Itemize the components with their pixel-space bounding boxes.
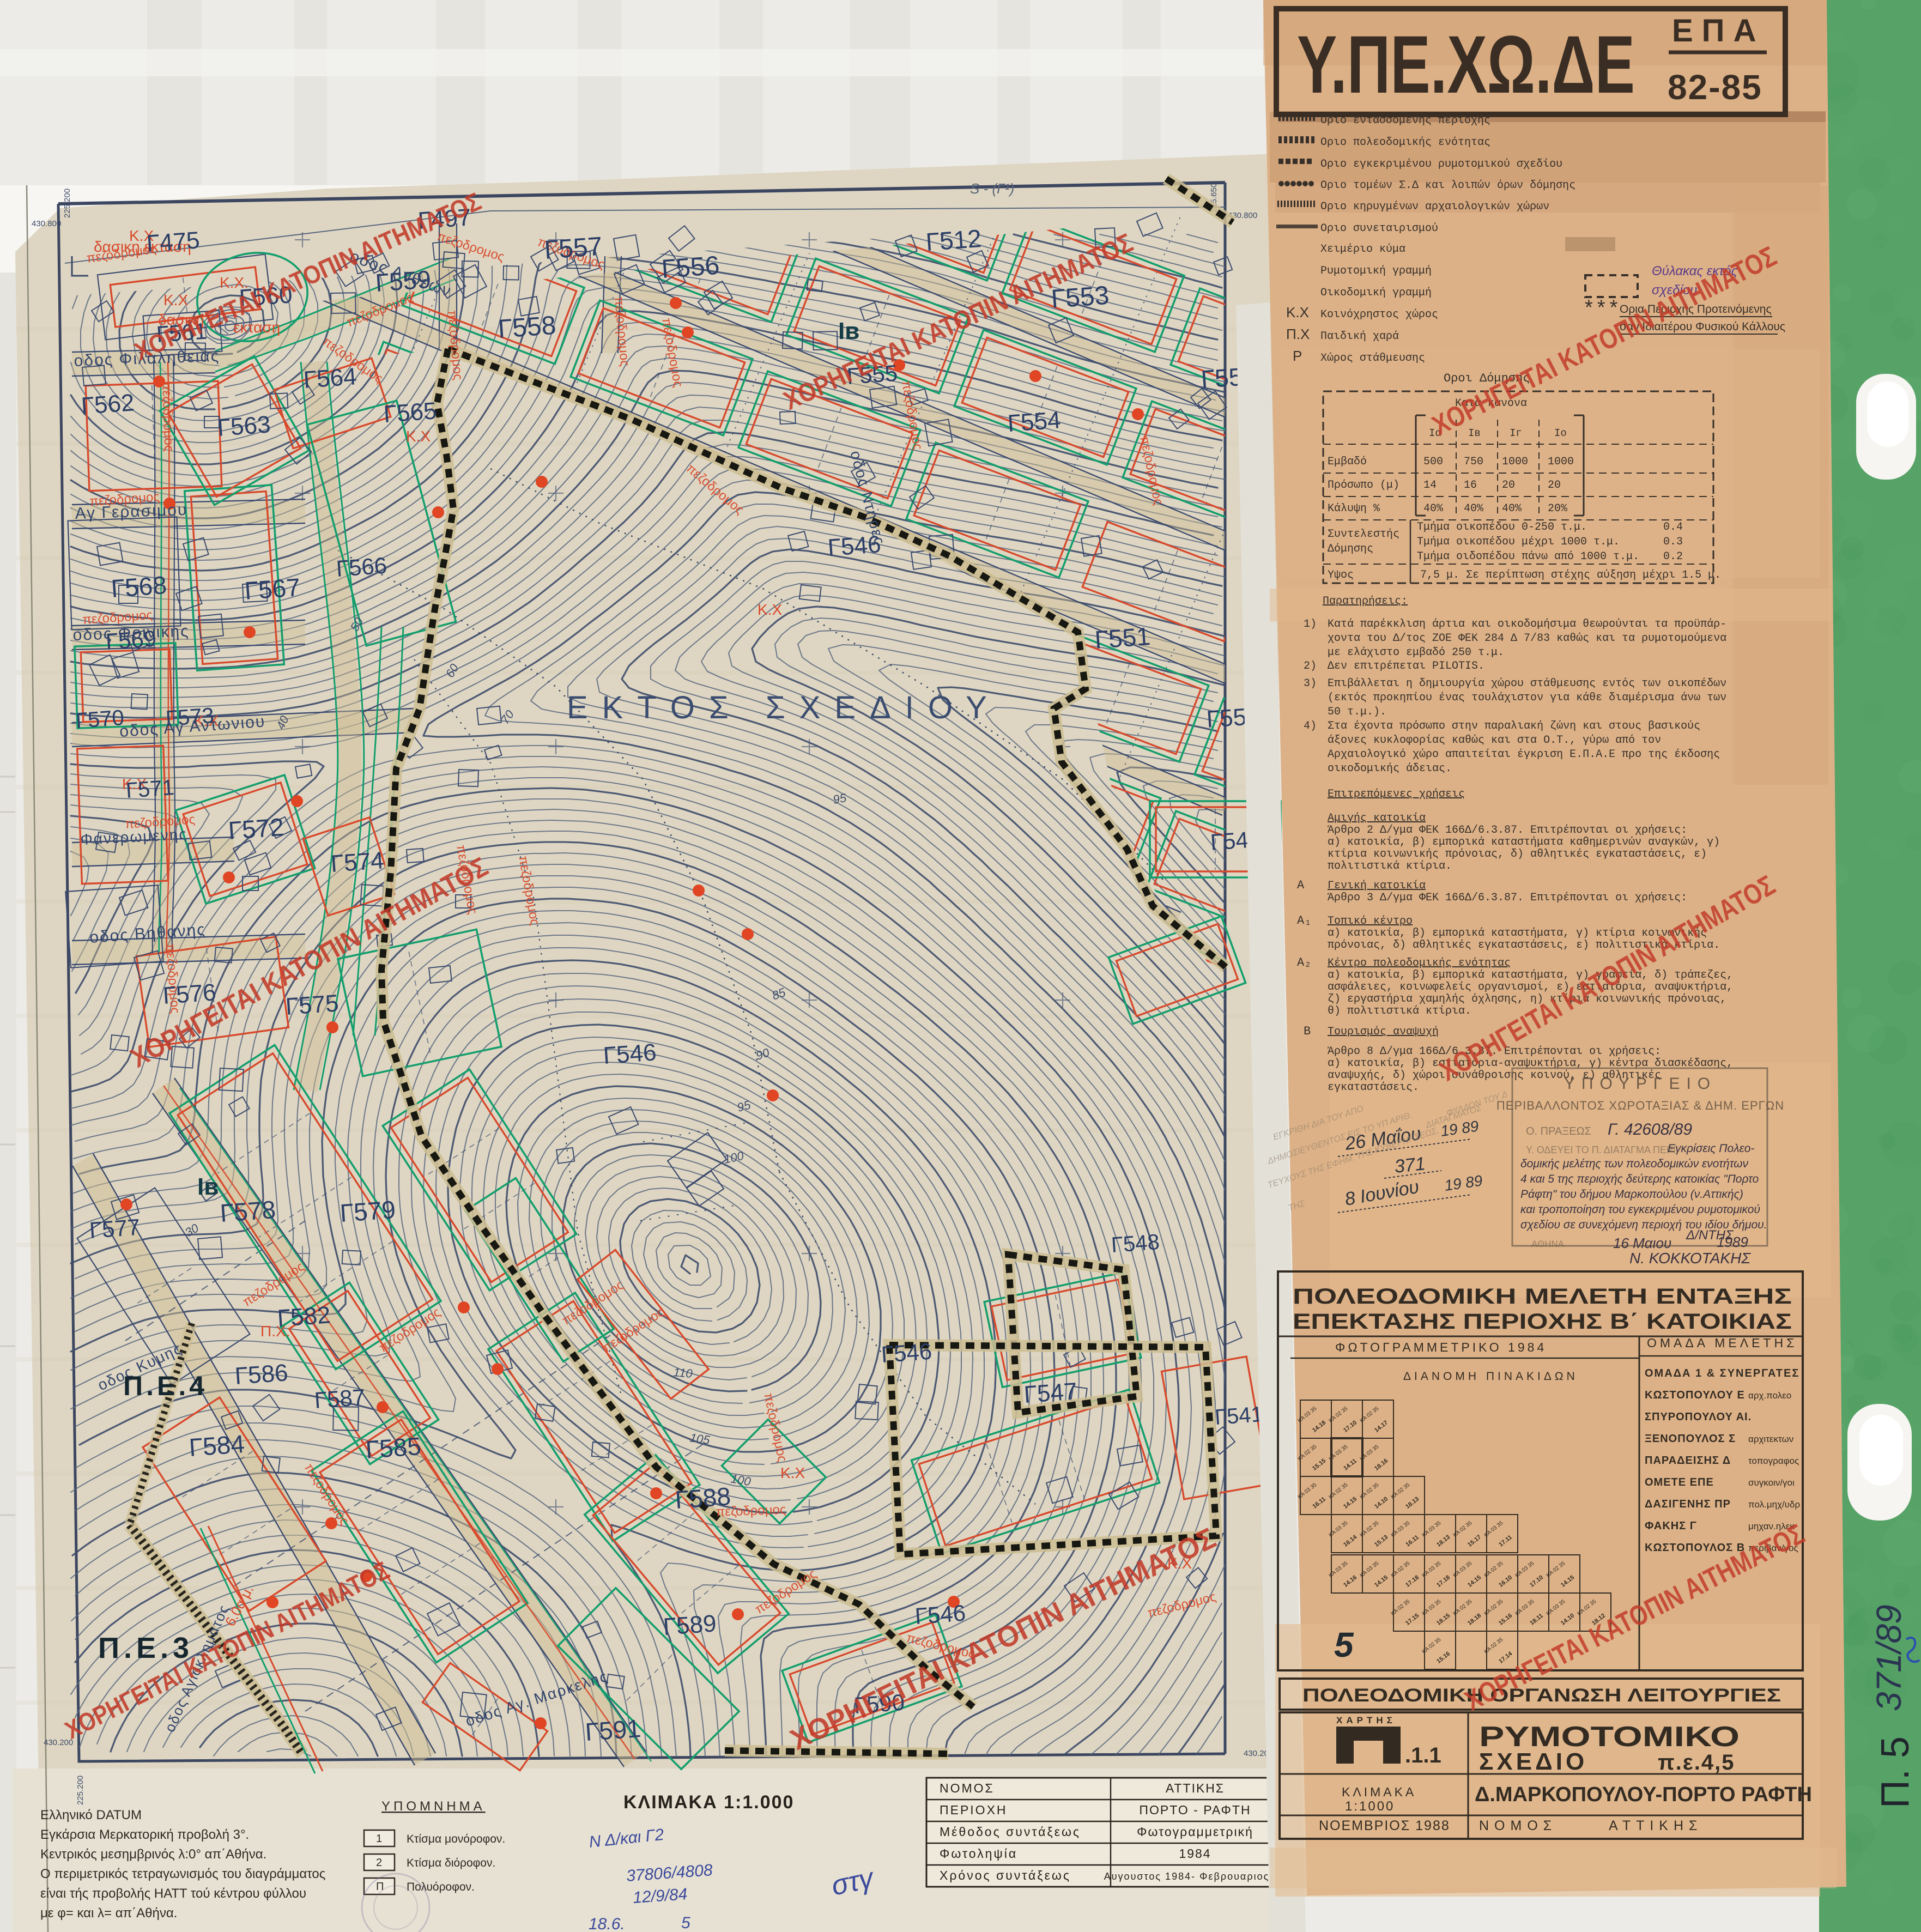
svg-text:Γ551: Γ551 <box>1094 622 1151 654</box>
svg-text:225.200: 225.200 <box>63 189 72 218</box>
svg-text:Γ556: Γ556 <box>660 251 720 284</box>
svg-text:ΟΜΑΔΑ ΜΕΛΕΤΗΣ: ΟΜΑΔΑ ΜΕΛΕΤΗΣ <box>1647 1336 1797 1350</box>
svg-text:Π.Χ: Π.Χ <box>1286 326 1310 342</box>
svg-text:Εμβαδό: Εμβαδό <box>1328 456 1367 468</box>
svg-text:5: 5 <box>1334 1625 1354 1664</box>
svg-text:Ράφτη" του δήμου Μαρκοπούλου (: Ράφτη" του δήμου Μαρκοπούλου (ν.Αττικής) <box>1520 1188 1743 1201</box>
svg-text:20: 20 <box>1502 479 1515 492</box>
svg-text:χοντα του Δ/τος ΖΟΕ ΦΕΚ 284 Δ: χοντα του Δ/τος ΖΟΕ ΦΕΚ 284 Δ 7/83 καθώς… <box>1328 632 1726 645</box>
svg-text:Γ564: Γ564 <box>302 363 357 393</box>
svg-text:πολιτιστικά κτίρια.: πολιτιστικά κτίρια. <box>1328 860 1452 873</box>
svg-text:20%: 20% <box>1548 502 1568 515</box>
svg-text:πολ.μηχ/υδρ: πολ.μηχ/υδρ <box>1748 1499 1800 1510</box>
svg-text:Πρόσωπο (μ): Πρόσωπο (μ) <box>1328 479 1399 492</box>
svg-text:Γ587: Γ587 <box>313 1384 366 1413</box>
svg-text:110: 110 <box>673 1365 694 1380</box>
svg-text:Κ.Χ: Κ.Χ <box>780 1464 805 1481</box>
svg-text:5: 5 <box>681 1914 690 1932</box>
svg-text:ΔΙΑΝΟΜΗ ΠΙΝΑΚΙΔΩΝ: ΔΙΑΝΟΜΗ ΠΙΝΑΚΙΔΩΝ <box>1403 1370 1578 1383</box>
svg-text:ΠΕΡΙΒΑΛΛΟΝΤΟΣ ΧΩΡΟΤΑΞΙΑΣ & ΔΗΜ: ΠΕΡΙΒΑΛΛΟΝΤΟΣ ΧΩΡΟΤΑΞΙΑΣ & ΔΗΜ. ΕΡΓΩΝ <box>1496 1099 1784 1112</box>
svg-text:Φωτοληψία: Φωτοληψία <box>940 1846 1017 1861</box>
svg-text:Α: Α <box>1297 879 1305 892</box>
svg-text:Κεντρικός μεσημβρινός λ:0° α: Κεντρικός μεσημβρινός λ:0° απ΄Αθήνα. <box>40 1847 266 1862</box>
svg-text:Γ585: Γ585 <box>365 1432 422 1464</box>
svg-text:Οριο πολεοδομικής ενότητας: Οριο πολεοδομικής ενότητας <box>1320 136 1490 149</box>
svg-text:40%: 40% <box>1464 502 1484 515</box>
svg-text:Γ. 42608/89: Γ. 42608/89 <box>1608 1121 1692 1138</box>
svg-text:Γ589: Γ589 <box>662 1610 717 1640</box>
svg-text:1984: 1984 <box>1179 1846 1211 1861</box>
svg-text:16: 16 <box>1464 479 1477 492</box>
svg-text:Γ541: Γ541 <box>1214 1402 1264 1430</box>
svg-text:Παρατηρήσεις:: Παρατηρήσεις: <box>1323 595 1408 608</box>
svg-text:πεζοδρομος: πεζοδρομος <box>159 381 176 452</box>
svg-text:Στα έχοντα πρόσωπο στην πα: Στα έχοντα πρόσωπο στην παραλιακή ζώνη κ… <box>1328 720 1700 732</box>
svg-text:ΠΕΡΙΟΧΗ: ΠΕΡΙΟΧΗ <box>940 1803 1008 1817</box>
svg-text:1): 1) <box>1304 618 1317 631</box>
svg-text:δομικής μελέτης των πολεοδομικ: δομικής μελέτης των πολεοδομικών ενοτήτω… <box>1520 1158 1749 1170</box>
svg-text:ΔΑΣΙΓΕΝΗΣ ΠΡ: ΔΑΣΙΓΕΝΗΣ ΠΡ <box>1645 1498 1731 1510</box>
svg-text:4 και 5 της περιοχής δεύτερης: 4 και 5 της περιοχής δεύτερης κατοικίας … <box>1520 1173 1759 1185</box>
svg-text:50 τ.μ.).: 50 τ.μ.). <box>1328 706 1386 718</box>
svg-text:Β: Β <box>1304 1025 1311 1038</box>
svg-text:Ρ: Ρ <box>1293 348 1302 364</box>
svg-text:Τμήμα οικοπέδου 0-250 τ.μ.: Τμήμα οικοπέδου 0-250 τ.μ. <box>1417 521 1587 534</box>
svg-text:Κ.Χ: Κ.Χ <box>406 428 431 445</box>
svg-text:ΞΕΝΟΠΟΥΛΟΣ Σ: ΞΕΝΟΠΟΥΛΟΣ Σ <box>1645 1433 1736 1445</box>
svg-text:ΥΠΟΥΡΓΕΙΟ: ΥΠΟΥΡΓΕΙΟ <box>1564 1075 1717 1093</box>
svg-text:Αμιγής κατοικία: Αμιγής κατοικία <box>1328 812 1426 825</box>
svg-text:ΟΜΕΤΕ ΕΠΕ: ΟΜΕΤΕ ΕΠΕ <box>1645 1476 1714 1488</box>
svg-text:ΦΑΚΗΣ Γ: ΦΑΚΗΣ Γ <box>1645 1520 1697 1532</box>
svg-text:ΝΟΕΜΒΡΙΟΣ 1988: ΝΟΕΜΒΡΙΟΣ 1988 <box>1319 1818 1450 1833</box>
svg-text:Γ579: Γ579 <box>339 1195 396 1227</box>
svg-text:ασφάλειες, κοινωφελείς οργανισ: ασφάλειες, κοινωφελείς οργανισμοί, ε) εσ… <box>1328 981 1733 994</box>
svg-text:Γ554: Γ554 <box>1007 407 1062 437</box>
svg-text:Γ582: Γ582 <box>276 1301 331 1332</box>
svg-text:Γ577: Γ577 <box>88 1214 141 1243</box>
svg-text:Ιв: Ιв <box>1468 427 1481 439</box>
svg-text:Π: Π <box>376 1881 384 1893</box>
svg-text:4): 4) <box>1304 720 1317 732</box>
svg-text:ζ) εργαστήρια χαμηλής όχλησης,: ζ) εργαστήρια χαμηλής όχλησης, η) κτίρια… <box>1328 993 1726 1006</box>
svg-text:20: 20 <box>1548 479 1561 492</box>
svg-text:ΕΠΑ: ΕΠΑ <box>1672 13 1765 49</box>
svg-text:ΝΟΜΟΣ: ΝΟΜΟΣ <box>940 1781 995 1795</box>
svg-text:Γ571: Γ571 <box>125 776 175 803</box>
svg-text:Γ512: Γ512 <box>925 224 982 256</box>
svg-text:Γ557: Γ557 <box>543 232 603 265</box>
svg-text:12/9/84: 12/9/84 <box>632 1885 688 1907</box>
svg-text:Οριο εντασσόμενης περιοχής: Οριο εντασσόμενης περιοχής <box>1320 114 1490 127</box>
svg-text:Γ546: Γ546 <box>914 1600 966 1629</box>
svg-text:Κ.Χ: Κ.Χ <box>1286 304 1309 320</box>
svg-text:Κοινόχρηστος χώρος: Κοινόχρηστος χώρος <box>1320 308 1438 321</box>
svg-text:και τροποποίηση του εγκεκριμέν: και τροποποίηση του εγκεκριμένου ρυμοτομ… <box>1520 1203 1760 1216</box>
svg-text:Ο περιμετρικός τετραγωνισμός τ: Ο περιμετρικός τετραγωνισμός του διαγράμ… <box>40 1867 325 1881</box>
svg-text:ΕΚΤΟΣ ΣΧΕΔΙΟΥ: ΕΚΤΟΣ ΣΧΕΔΙΟΥ <box>567 690 1001 725</box>
svg-text:Κ.Χ: Κ.Χ <box>758 601 782 618</box>
svg-text:Γ558: Γ558 <box>497 311 557 344</box>
svg-text:95: 95 <box>832 791 848 807</box>
svg-text:ΚΛΙΜΑΚΑ: ΚΛΙΜΑΚΑ <box>1342 1785 1416 1799</box>
svg-text:Φωτογραμμετρική: Φωτογραμμετρική <box>1137 1825 1253 1839</box>
svg-text:7,5 μ. Σε περίπτωση στέχης αύξ: 7,5 μ. Σε περίπτωση στέχης αύξηση μέχρι … <box>1420 569 1721 582</box>
svg-text:είναι τής προβολής ΗΑΤΤ τού κέ: είναι τής προβολής ΗΑΤΤ τού κέντρου φύλλ… <box>40 1886 306 1901</box>
svg-text:(εκτός προκηπίου ένας τουλάχισ: (εκτός προκηπίου ένας τουλάχιστον για κά… <box>1328 692 1726 704</box>
svg-text:Δ/ΝΤΗΣ: Δ/ΝΤΗΣ <box>1686 1228 1734 1243</box>
svg-text:Υ. ΟΔΕΥΕΙ ΤΟ Π. ΔΙΑΤΑΓΜΑ ΠΕΡΙ: Υ. ΟΔΕΥΕΙ ΤΟ Π. ΔΙΑΤΑΓΜΑ ΠΕΡΙ <box>1526 1144 1676 1155</box>
svg-text:αρχιτεκτων: αρχιτεκτων <box>1748 1434 1793 1444</box>
svg-text:18.6.: 18.6. <box>589 1915 625 1932</box>
svg-text:1000: 1000 <box>1548 456 1574 468</box>
svg-text:Π.Ε.4: Π.Ε.4 <box>123 1371 208 1401</box>
svg-text:Γ567: Γ567 <box>244 573 301 605</box>
svg-text:0.3: 0.3 <box>1663 536 1683 548</box>
svg-text:Οριο συνεταιρισμού: Οριο συνεταιρισμού <box>1320 222 1438 235</box>
svg-text:105: 105 <box>689 1431 711 1447</box>
svg-text:Γ578: Γ578 <box>219 1195 276 1227</box>
svg-text:άξονες κυκλοφορίας καθώς κα: άξονες κυκλοφορίας καθώς και στα Ο.Τ., γ… <box>1328 734 1661 747</box>
svg-text:Γ568: Γ568 <box>110 571 167 603</box>
svg-text:ΠΑΡΑΔΕΙΣΗΣ Δ: ΠΑΡΑΔΕΙΣΗΣ Δ <box>1645 1455 1731 1467</box>
svg-text:0.4: 0.4 <box>1663 521 1683 534</box>
svg-text:Ιв: Ιв <box>197 1173 219 1200</box>
svg-text:θ) πολιτιστικά κτίρια.: θ) πολιτιστικά κτίρια. <box>1328 1005 1471 1018</box>
svg-text:430.800: 430.800 <box>32 219 61 228</box>
svg-text:Δ.ΜΑΡΚΟΠΟΥΛΟΥ-ΠΟΡΤΟ ΡΑΦΤΗ: Δ.ΜΑΡΚΟΠΟΥΛΟΥ-ΠΟΡΤΟ ΡΑΦΤΗ <box>1475 1783 1812 1806</box>
svg-text:Άρθρο 3 Δ/γμα ΦΕΚ 166Δ/6.3.87.: Άρθρο 3 Δ/γμα ΦΕΚ 166Δ/6.3.87. Επιτρέπον… <box>1328 892 1687 904</box>
svg-text:Γ546: Γ546 <box>880 1339 932 1367</box>
svg-text:40%: 40% <box>1502 502 1522 515</box>
svg-text:Τμήμα οικοπέδου μέχρι 1000 τ.μ: Τμήμα οικοπέδου μέχρι 1000 τ.μ. <box>1417 536 1620 548</box>
svg-text:Ο. ΠΡΑΞΕΩΣ: Ο. ΠΡΑΞΕΩΣ <box>1526 1125 1591 1137</box>
svg-text:ΑΤΤΙΚΗΣ: ΑΤΤΙΚΗΣ <box>1609 1818 1703 1833</box>
svg-text:ΑΘΗΝΑ: ΑΘΗΝΑ <box>1531 1239 1565 1249</box>
svg-text:14: 14 <box>1423 479 1437 492</box>
svg-text:Παιδική χαρά: Παιδική χαρά <box>1320 330 1399 343</box>
svg-text:Τουρισμός αναψυχή: Τουρισμός αναψυχή <box>1328 1026 1439 1038</box>
svg-text:Α₁: Α₁ <box>1297 914 1311 928</box>
svg-text:Ιг: Ιг <box>1510 427 1522 439</box>
svg-text:α) κατοικία, β) εμπορικά κατα: α) κατοικία, β) εμπορικά καταστήματα καθ… <box>1328 836 1720 849</box>
svg-text:Γ588: Γ588 <box>674 1482 731 1514</box>
svg-text:Ιв: Ιв <box>838 318 859 344</box>
svg-text:Α₂: Α₂ <box>1297 956 1311 970</box>
svg-text:τοπογραφος: τοπογραφος <box>1748 1456 1799 1466</box>
svg-text:Οριο κηρυγμένων αρχαιολογικών: Οριο κηρυγμένων αρχαιολογικών χώρων <box>1320 201 1549 213</box>
svg-text:40%: 40% <box>1423 502 1444 515</box>
svg-text:Κατά παρέκκλιση άρτια και οικ: Κατά παρέκκλιση άρτια και οικοδομήσιμα θ… <box>1328 618 1726 631</box>
svg-text:Χειμέριο κύμα: Χειμέριο κύμα <box>1320 243 1405 256</box>
svg-text:Ιо: Ιо <box>1554 427 1567 439</box>
svg-text:Άρθρο 2 Δ/γμα ΦΕΚ 166Δ/6.3.87.: Άρθρο 2 Δ/γμα ΦΕΚ 166Δ/6.3.87. Επιτρέπον… <box>1328 824 1687 837</box>
svg-text:Γ562: Γ562 <box>80 389 135 420</box>
svg-text:Μέθοδος συντάξεως: Μέθοδος συντάξεως <box>940 1825 1081 1839</box>
svg-text:1: 1 <box>376 1833 382 1845</box>
svg-text:αρχ.πολεο: αρχ.πολεο <box>1748 1390 1791 1401</box>
svg-text:κτίρια κοινωνικής πρόνοιας, δ): κτίρια κοινωνικής πρόνοιας, δ) αθλητικές… <box>1328 848 1707 861</box>
svg-text:Οικοδομική γραμμή: Οικοδομική γραμμή <box>1320 287 1432 299</box>
svg-text:ΠΟΛΕΟΔΟΜΙΚΗ ΜΕΛΕΤΗ ΕΝΤΑΞΗΣ: ΠΟΛΕΟΔΟΜΙΚΗ ΜΕΛΕΤΗ ΕΝΤΑΞΗΣ <box>1293 1285 1792 1309</box>
svg-text:ΚΩΣΤΟΠΟΥΛΟΥ Ε: ΚΩΣΤΟΠΟΥΛΟΥ Ε <box>1645 1389 1745 1401</box>
svg-text:Συντελεστής: Συντελεστής <box>1328 528 1399 541</box>
svg-text:225.200: 225.200 <box>76 1776 85 1805</box>
svg-text:Δόμησης: Δόμησης <box>1328 543 1373 555</box>
svg-text:Χώρος στάθμευσης: Χώρος στάθμευσης <box>1320 352 1425 365</box>
svg-text:Γ475: Γ475 <box>146 227 201 257</box>
svg-text:Γ591: Γ591 <box>584 1714 641 1746</box>
svg-text:π.ε.4,5: π.ε.4,5 <box>1658 1751 1735 1774</box>
svg-text:Ν. ΚΟΚΚΟΤΑΚΗΣ: Ν. ΚΟΚΚΟΤΑΚΗΣ <box>1629 1250 1751 1267</box>
svg-text:Γ548: Γ548 <box>1111 1230 1161 1257</box>
svg-text:Αυγουστος 1984- Φεβρουαριος 19: Αυγουστος 1984- Φεβρουαριος 19 <box>1104 1871 1287 1882</box>
svg-text:Γ584: Γ584 <box>188 1430 245 1462</box>
svg-text:Τοπικό κέντρο: Τοπικό κέντρο <box>1328 915 1413 928</box>
svg-text:750: 750 <box>1464 456 1483 468</box>
svg-text:Γ563: Γ563 <box>216 411 271 441</box>
svg-text:Γ565: Γ565 <box>383 397 438 428</box>
svg-text:Κ.Χ: Κ.Χ <box>163 292 188 308</box>
svg-text:ΣΧΕΔΙΟ: ΣΧΕΔΙΟ <box>1479 1748 1587 1775</box>
svg-text:ΝΟΜΟΣ: ΝΟΜΟΣ <box>1479 1818 1557 1833</box>
svg-text:ΣΠΥΡΟΠΟΥΛΟΥ ΑΙ.: ΣΠΥΡΟΠΟΥΛΟΥ ΑΙ. <box>1645 1411 1752 1423</box>
svg-text:Γ570: Γ570 <box>75 706 125 733</box>
svg-text:Ρυμοτομική γραμμή: Ρυμοτομική γραμμή <box>1320 265 1432 277</box>
svg-text:3): 3) <box>1304 677 1317 690</box>
svg-text:Γ547: Γ547 <box>1023 1378 1078 1408</box>
svg-text:Γ566: Γ566 <box>335 553 387 582</box>
svg-text:οικοδομικής άδειας.: οικοδομικής άδειας. <box>1328 762 1452 775</box>
svg-text:ΧΑΡΤΗΣ: ΧΑΡΤΗΣ <box>1336 1715 1396 1725</box>
svg-text:1000: 1000 <box>1502 456 1528 468</box>
svg-text:Εγκρίσεις Πολεο-: Εγκρίσεις Πολεο- <box>1668 1142 1754 1155</box>
svg-text:430.200: 430.200 <box>44 1738 73 1747</box>
svg-text:ΦΩΤΟΓΡΑΜΜΕΤΡΙΚΟ 1984: ΦΩΤΟΓΡΑΜΜΕΤΡΙΚΟ 1984 <box>1335 1340 1547 1354</box>
svg-text:Υψος: Υψος <box>1328 569 1354 582</box>
svg-text:Οριο τομέων Σ.Δ και λοιπών όρω: Οριο τομέων Σ.Δ και λοιπών όρων δόμησης <box>1320 179 1575 192</box>
svg-text:α) κατοικία, β) εμπορικά κατασ: α) κατοικία, β) εμπορικά καταστήματα, γ)… <box>1328 969 1733 982</box>
svg-text:0.2: 0.2 <box>1663 550 1683 563</box>
svg-text:Κέντρο πολεοδομικής ενότητας: Κέντρο πολεοδομικής ενότητας <box>1328 957 1511 970</box>
svg-text:16 Μαιου: 16 Μαιου <box>1613 1235 1671 1251</box>
svg-text:Ελληνικό DATUM: Ελληνικό DATUM <box>40 1808 142 1822</box>
svg-text:Δεν επιτρέπεται PILOTIS.: Δεν επιτρέπεται PILOTIS. <box>1328 660 1484 673</box>
svg-text:ΚΛΙΜΑΚΑ 1:1.000: ΚΛΙΜΑΚΑ 1:1.000 <box>623 1792 794 1813</box>
svg-text:Οριο εγκεκριμένου ρυμοτομικού: Οριο εγκεκριμένου ρυμοτομικού σχεδίου <box>1320 158 1562 171</box>
svg-text:ΟΜΑΔΑ 1 & ΣΥΝΕΡΓΑΤΕΣ: ΟΜΑΔΑ 1 & ΣΥΝΕΡΓΑΤΕΣ <box>1645 1367 1799 1379</box>
svg-text:συγκοιν/γοι: συγκοιν/γοι <box>1748 1477 1795 1488</box>
svg-text:με ελάχιστο εμβαδό 250 τ.μ.: με ελάχιστο εμβαδό 250 τ.μ. <box>1328 646 1504 659</box>
svg-text:2): 2) <box>1304 660 1317 673</box>
svg-text:Γενική κατοικία: Γενική κατοικία <box>1328 880 1426 892</box>
svg-text:Επιβάλλεται η δημιουργία χώρου: Επιβάλλεται η δημιουργία χώρου στάθμευση… <box>1328 677 1726 690</box>
svg-text:Κάλυψη %: Κάλυψη % <box>1328 502 1380 515</box>
svg-text:Υ.ΠΕ.ΧΩ.ΔΕ: Υ.ΠΕ.ΧΩ.ΔΕ <box>1297 19 1635 110</box>
svg-text:Επιτρεπόμενες χρήσεις: Επιτρεπόμενες χρήσεις <box>1328 788 1465 801</box>
svg-text:82-85: 82-85 <box>1668 68 1762 107</box>
svg-text:Χρόνος συντάξεως: Χρόνος συντάξεως <box>940 1868 1071 1882</box>
svg-text:Γ586: Γ586 <box>234 1359 289 1390</box>
svg-text:Κτίσμα διόροφον.: Κτίσμα διόροφον. <box>407 1857 495 1869</box>
svg-text:Πολυόροφον.: Πολυόροφον. <box>407 1881 475 1893</box>
svg-text:Αρχαιολογικό χώρο απαιτείται: Αρχαιολογικό χώρο απαιτείται έγκριση Ε.Π… <box>1328 748 1720 761</box>
svg-text:ΠΟΛΕΟΔΟΜΙΚΗ ΟΡΓΑΝΩΣΗ ΛΕΙΤΟΥΡ: ΠΟΛΕΟΔΟΜΙΚΗ ΟΡΓΑΝΩΣΗ ΛΕΙΤΟΥΡΓΙΕΣ <box>1302 1685 1781 1706</box>
svg-text:1:1000: 1:1000 <box>1345 1799 1395 1814</box>
svg-text:2: 2 <box>376 1857 382 1869</box>
svg-text:ΥΠΟΜΝΗΜΑ: ΥΠΟΜΝΗΜΑ <box>381 1799 486 1814</box>
svg-text:371: 371 <box>1393 1153 1426 1177</box>
svg-text:500: 500 <box>1423 456 1443 468</box>
svg-text:ΕΠΕΚΤΑΣΗΣ ΠΕΡΙΟΧΗΣ Β΄ ΚΑΤΟΙΚ: ΕΠΕΚΤΑΣΗΣ ΠΕΡΙΟΧΗΣ Β΄ ΚΑΤΟΙΚΙΑΣ <box>1293 1310 1792 1334</box>
svg-text:Εγκάρσια Μερκατορική προβολή 3: Εγκάρσια Μερκατορική προβολή 3°. <box>40 1827 249 1842</box>
svg-text:Γ575: Γ575 <box>284 990 340 1020</box>
svg-text:ΠΟΡΤΟ - ΡΑΦΤΗ: ΠΟΡΤΟ - ΡΑΦΤΗ <box>1139 1803 1251 1817</box>
svg-text:S - (Γ¹): S - (Γ¹) <box>970 180 1014 197</box>
svg-text:ΑΤΤΙΚΗΣ: ΑΤΤΙΚΗΣ <box>1166 1781 1225 1795</box>
svg-text:Γ546: Γ546 <box>602 1039 657 1069</box>
svg-text:Γ574: Γ574 <box>330 847 385 877</box>
svg-text:με φ= και λ=: με φ= και λ= απ΄Αθήνα. <box>40 1906 177 1921</box>
svg-text:εγκαταστάσεις.: εγκαταστάσεις. <box>1328 1081 1419 1094</box>
svg-text:.1.1: .1.1 <box>1405 1743 1441 1767</box>
svg-text:371/89: 371/89 <box>1869 1604 1908 1711</box>
svg-text:Τμήμα οιδοπέδου πάνω από 1000: Τμήμα οιδοπέδου πάνω από 1000 τ.μ. <box>1417 550 1639 563</box>
svg-text:Γ572: Γ572 <box>227 813 284 845</box>
svg-text:Π. 5: Π. 5 <box>1874 1736 1917 1808</box>
svg-text:Κτίσμα μονόροφον.: Κτίσμα μονόροφον. <box>407 1833 505 1845</box>
